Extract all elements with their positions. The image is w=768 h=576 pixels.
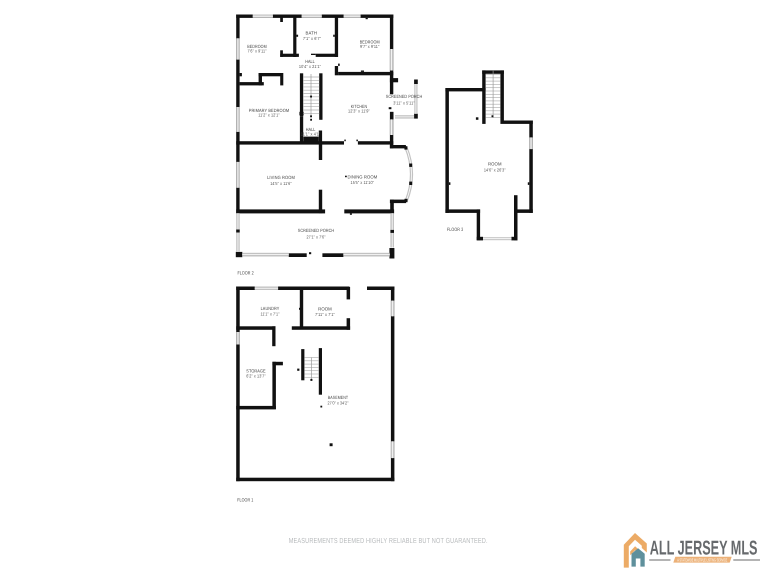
svg-text:FLOOR 1: FLOOR 1 xyxy=(237,497,253,503)
svg-text:ROOM: ROOM xyxy=(488,162,502,167)
svg-text:SCREENED PORCH: SCREENED PORCH xyxy=(298,228,334,233)
svg-text:14'6" x 26'3": 14'6" x 26'3" xyxy=(484,168,506,173)
svg-text:FLOOR 3: FLOOR 3 xyxy=(447,227,463,233)
svg-text:12'3" x 11'9": 12'3" x 11'9" xyxy=(348,109,370,114)
svg-text:7'11" x 7'1": 7'11" x 7'1" xyxy=(315,312,335,317)
svg-text:11'2" x 12'1": 11'2" x 12'1" xyxy=(258,113,280,118)
svg-text:3'11" x 5'11": 3'11" x 5'11" xyxy=(393,100,415,105)
svg-text:FLOOR 2: FLOOR 2 xyxy=(238,271,254,277)
svg-text:27'1" x 7'6": 27'1" x 7'6" xyxy=(307,235,326,240)
svg-text:11'1" x 4'1": 11'1" x 4'1" xyxy=(301,132,321,137)
svg-text:DINING ROOM: DINING ROOM xyxy=(347,174,377,179)
svg-text:6'2" x 13'7": 6'2" x 13'7" xyxy=(246,374,266,379)
svg-text:ROOM: ROOM xyxy=(318,307,332,312)
svg-text:9'7" x 9'11": 9'7" x 9'11" xyxy=(360,44,380,49)
svg-text:BATH: BATH xyxy=(306,31,318,36)
svg-text:ALL JERSEY MLS: ALL JERSEY MLS xyxy=(650,537,758,559)
svg-text:7'6" x 9'11": 7'6" x 9'11" xyxy=(248,49,267,54)
svg-text:15'5" x 11'10": 15'5" x 11'10" xyxy=(351,180,375,185)
svg-text:27'0" x 34'2": 27'0" x 34'2" xyxy=(328,401,349,406)
svg-text:11'1" x 7'1": 11'1" x 7'1" xyxy=(261,311,280,316)
svg-text:LIVING ROOM: LIVING ROOM xyxy=(267,175,295,180)
svg-text:BASEMENT: BASEMENT xyxy=(328,395,348,400)
svg-text:SCREENED PORCH: SCREENED PORCH xyxy=(386,94,423,99)
svg-text:A STATEWIDE MULTIPLE LISTING S: A STATEWIDE MULTIPLE LISTING SERVICE xyxy=(677,557,727,562)
svg-text:10'4" x 21'1": 10'4" x 21'1" xyxy=(299,64,321,69)
svg-text:7'1" x 6'7": 7'1" x 6'7" xyxy=(303,36,322,41)
svg-text:14'5" x 11'6": 14'5" x 11'6" xyxy=(270,181,292,186)
svg-text:MEASUREMENTS DEEMED HIGHLY REL: MEASUREMENTS DEEMED HIGHLY RELIABLE BUT … xyxy=(289,536,488,545)
svg-text:LAUNDRY: LAUNDRY xyxy=(261,306,280,311)
